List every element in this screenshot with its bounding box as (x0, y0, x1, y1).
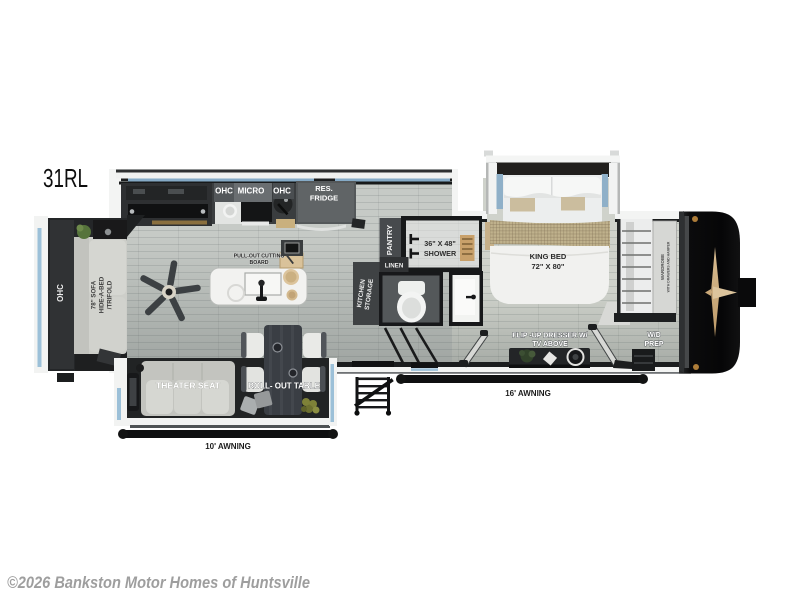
svg-text:LINEN: LINEN (385, 263, 404, 270)
svg-text:31RL: 31RL (43, 163, 88, 193)
svg-text:MICRO: MICRO (238, 187, 265, 196)
svg-text:78" SOFA: 78" SOFA (91, 280, 98, 309)
svg-text:W/D: W/D (647, 332, 661, 339)
svg-text:72" X 80": 72" X 80" (532, 262, 565, 271)
svg-text:PULL-OUT CUTTING: PULL-OUT CUTTING (234, 254, 285, 260)
svg-text:10' AWNING: 10' AWNING (205, 442, 251, 451)
svg-text:36" X 48": 36" X 48" (424, 239, 456, 248)
svg-text:THEATER SEAT: THEATER SEAT (156, 381, 221, 391)
svg-text:RES.: RES. (315, 184, 333, 193)
svg-text:OHC: OHC (56, 284, 65, 302)
svg-text:TV ABOVE: TV ABOVE (532, 341, 568, 348)
svg-text:PANTRY: PANTRY (385, 225, 394, 255)
svg-text:FRIDGE: FRIDGE (310, 194, 338, 203)
svg-text:©2026 Bankston Motor Homes of: ©2026 Bankston Motor Homes of Huntsville (7, 574, 310, 592)
svg-text:BOARD: BOARD (249, 260, 268, 266)
svg-text:KING BED: KING BED (530, 252, 567, 261)
svg-text:16' AWNING: 16' AWNING (505, 389, 551, 398)
svg-text:WARDROBE: WARDROBE (660, 254, 665, 280)
svg-text:OHC: OHC (273, 187, 291, 196)
svg-text:OHC: OHC (215, 187, 233, 196)
svg-text:ROLL- OUT TABLE: ROLL- OUT TABLE (248, 382, 321, 391)
svg-text:SHOWER: SHOWER (424, 249, 457, 258)
svg-text:WITH DRAWERS AND HAMPER: WITH DRAWERS AND HAMPER (667, 241, 671, 292)
svg-text:HIDE-A-BED: HIDE-A-BED (99, 276, 106, 313)
svg-text:/TRIFOLD: /TRIFOLD (107, 280, 114, 309)
svg-text:PREP: PREP (644, 341, 663, 348)
svg-text:FLIP -UP DRESSER W/: FLIP -UP DRESSER W/ (512, 333, 587, 340)
